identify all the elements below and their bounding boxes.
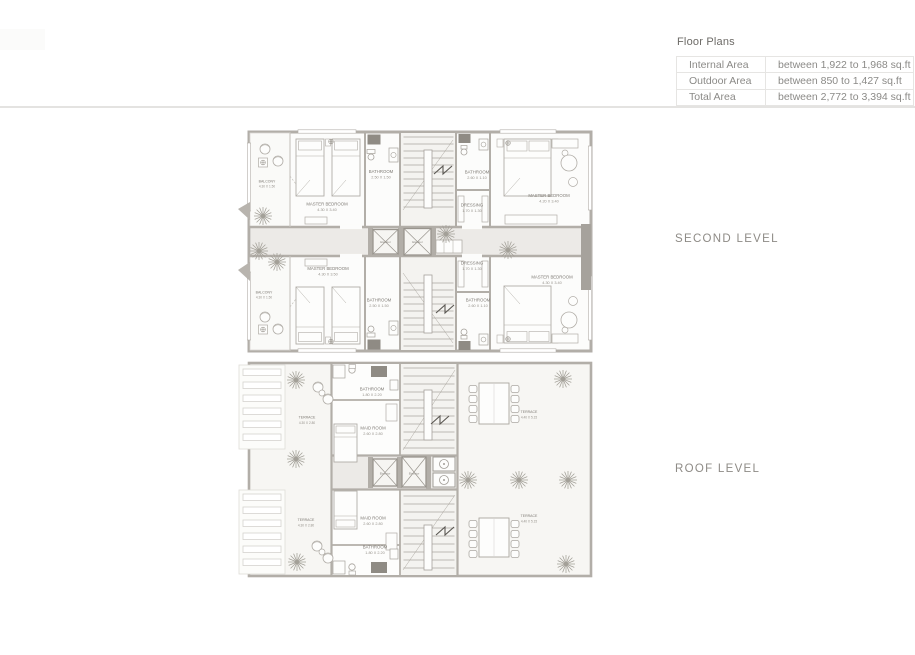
- table-row: Internal Area between 1,922 to 1,968 sq.…: [677, 57, 914, 73]
- elevator-label: Elevator: [380, 472, 391, 476]
- entry-step-bottom: [238, 262, 250, 281]
- room-dims: 4.20 X 3.40: [539, 200, 558, 204]
- ceiling-light-icon: [506, 337, 511, 342]
- second-level-plan: Elevator Elevator: [233, 118, 601, 360]
- plant-icon: [499, 241, 517, 259]
- room-label: BATHROOM: [465, 170, 490, 175]
- room-dims: 2.60 X 1.10: [467, 176, 486, 180]
- room-label: MAID ROOM: [360, 426, 386, 431]
- room-label: BATHROOM: [367, 298, 392, 303]
- room-label: BALCONY: [259, 180, 276, 184]
- room-dims: 4.40 X 5.15: [521, 416, 538, 420]
- floor-plans-title: Floor Plans: [677, 36, 914, 48]
- room-label: DRESSING: [461, 261, 484, 266]
- room-label: MASTER BEDROOM: [531, 275, 573, 280]
- plant-icon: [250, 242, 268, 260]
- plant-icon: [459, 471, 477, 489]
- area-value: between 850 to 1,427 sq.ft: [766, 73, 914, 89]
- room-dims: 4.40 X 5.15: [521, 520, 538, 524]
- balcony-bottom: [250, 256, 290, 350]
- room-dims: 4.30 X 1.50: [256, 296, 273, 300]
- roof-level-plan: Elevator Elevator: [231, 354, 603, 584]
- elevator-shafts: Elevator Elevator: [368, 228, 436, 255]
- room-label: TERRACE: [521, 410, 538, 414]
- floor-plans-panel: Floor Plans Internal Area between 1,922 …: [676, 36, 914, 106]
- areas-table: Internal Area between 1,922 to 1,968 sq.…: [676, 56, 914, 106]
- room-dims: 4.30 X 3.50: [318, 273, 337, 277]
- second-level-title: SECOND LEVEL: [675, 233, 779, 245]
- plant-icon: [254, 207, 272, 225]
- room-label: MASTER BEDROOM: [528, 193, 570, 198]
- room-dims: 4.30 X 3.40: [317, 208, 336, 212]
- pergola-top: [239, 365, 285, 449]
- room-dims: 2.50 X 1.50: [371, 176, 390, 180]
- area-label: Internal Area: [677, 57, 766, 73]
- plant-icon: [287, 450, 305, 468]
- room-label: DRESSING: [461, 203, 484, 208]
- room-dims: 4.30 X 2.80: [298, 524, 315, 528]
- room-label: BATHROOM: [360, 387, 385, 392]
- floor-plans-page: Floor Plans Internal Area between 1,922 …: [0, 0, 915, 655]
- plant-icon: [510, 471, 528, 489]
- right-service-band: [581, 224, 591, 290]
- room-label: TERRACE: [298, 518, 315, 522]
- elevator-shafts: Elevator Elevator: [368, 456, 431, 489]
- roof-level-title: ROOF LEVEL: [675, 463, 760, 475]
- table-row: Outdoor Area between 850 to 1,427 sq.ft: [677, 73, 914, 89]
- room-label: MASTER BEDROOM: [306, 202, 348, 207]
- room-dims: 2.60 X 2.80: [363, 522, 382, 526]
- room-dims: 4.30 X 1.50: [259, 185, 276, 189]
- room-dims: 4.30 X 3.40: [542, 281, 561, 285]
- plant-icon: [268, 253, 286, 271]
- plant-icon: [437, 225, 455, 243]
- plant-icon: [554, 370, 572, 388]
- ceiling-light-icon: [329, 339, 334, 344]
- plant-icon: [557, 555, 575, 573]
- area-label: Outdoor Area: [677, 73, 766, 89]
- room-label: TERRACE: [299, 416, 316, 420]
- room-label: BATHROOM: [363, 545, 388, 550]
- room-dims: 1.70 X 1.30: [462, 267, 481, 271]
- room-dims: 2.50 X 1.50: [369, 304, 388, 308]
- room-dims: 1.80 X 2.20: [362, 393, 381, 397]
- room-dims: 1.80 X 2.20: [365, 551, 384, 555]
- room-label: BALCONY: [256, 291, 273, 295]
- room-label: MAID ROOM: [360, 516, 386, 521]
- room-label: TERRACE: [521, 514, 538, 518]
- elevator-label: Elevator: [380, 240, 391, 244]
- room-dims: 2.60 X 1.10: [468, 304, 487, 308]
- area-value: between 1,922 to 1,968 sq.ft: [766, 57, 914, 73]
- elevator-label: Elevator: [409, 472, 420, 476]
- room-label: MASTER BEDROOM: [307, 266, 349, 271]
- area-label: Total Area: [677, 89, 766, 105]
- corner-watermark: [0, 29, 45, 50]
- plant-icon: [559, 471, 577, 489]
- room-dims: 1.70 X 1.30: [462, 209, 481, 213]
- room-dims: 4.30 X 2.80: [299, 421, 316, 425]
- room-dims: 2.60 X 2.80: [363, 432, 382, 436]
- ceiling-light-icon: [329, 139, 334, 144]
- entry-step-top: [238, 202, 250, 220]
- area-value: between 2,772 to 3,394 sq.ft: [766, 89, 914, 105]
- table-row: Total Area between 2,772 to 3,394 sq.ft: [677, 89, 914, 105]
- elevator-label: Elevator: [412, 240, 423, 244]
- plant-icon: [287, 371, 305, 389]
- ceiling-light-icon: [506, 141, 511, 146]
- header-divider: [0, 106, 915, 108]
- room-label: BATHROOM: [466, 298, 491, 303]
- plant-icon: [288, 553, 306, 571]
- room-label: BATHROOM: [369, 169, 394, 174]
- pergola-bottom: [239, 490, 285, 574]
